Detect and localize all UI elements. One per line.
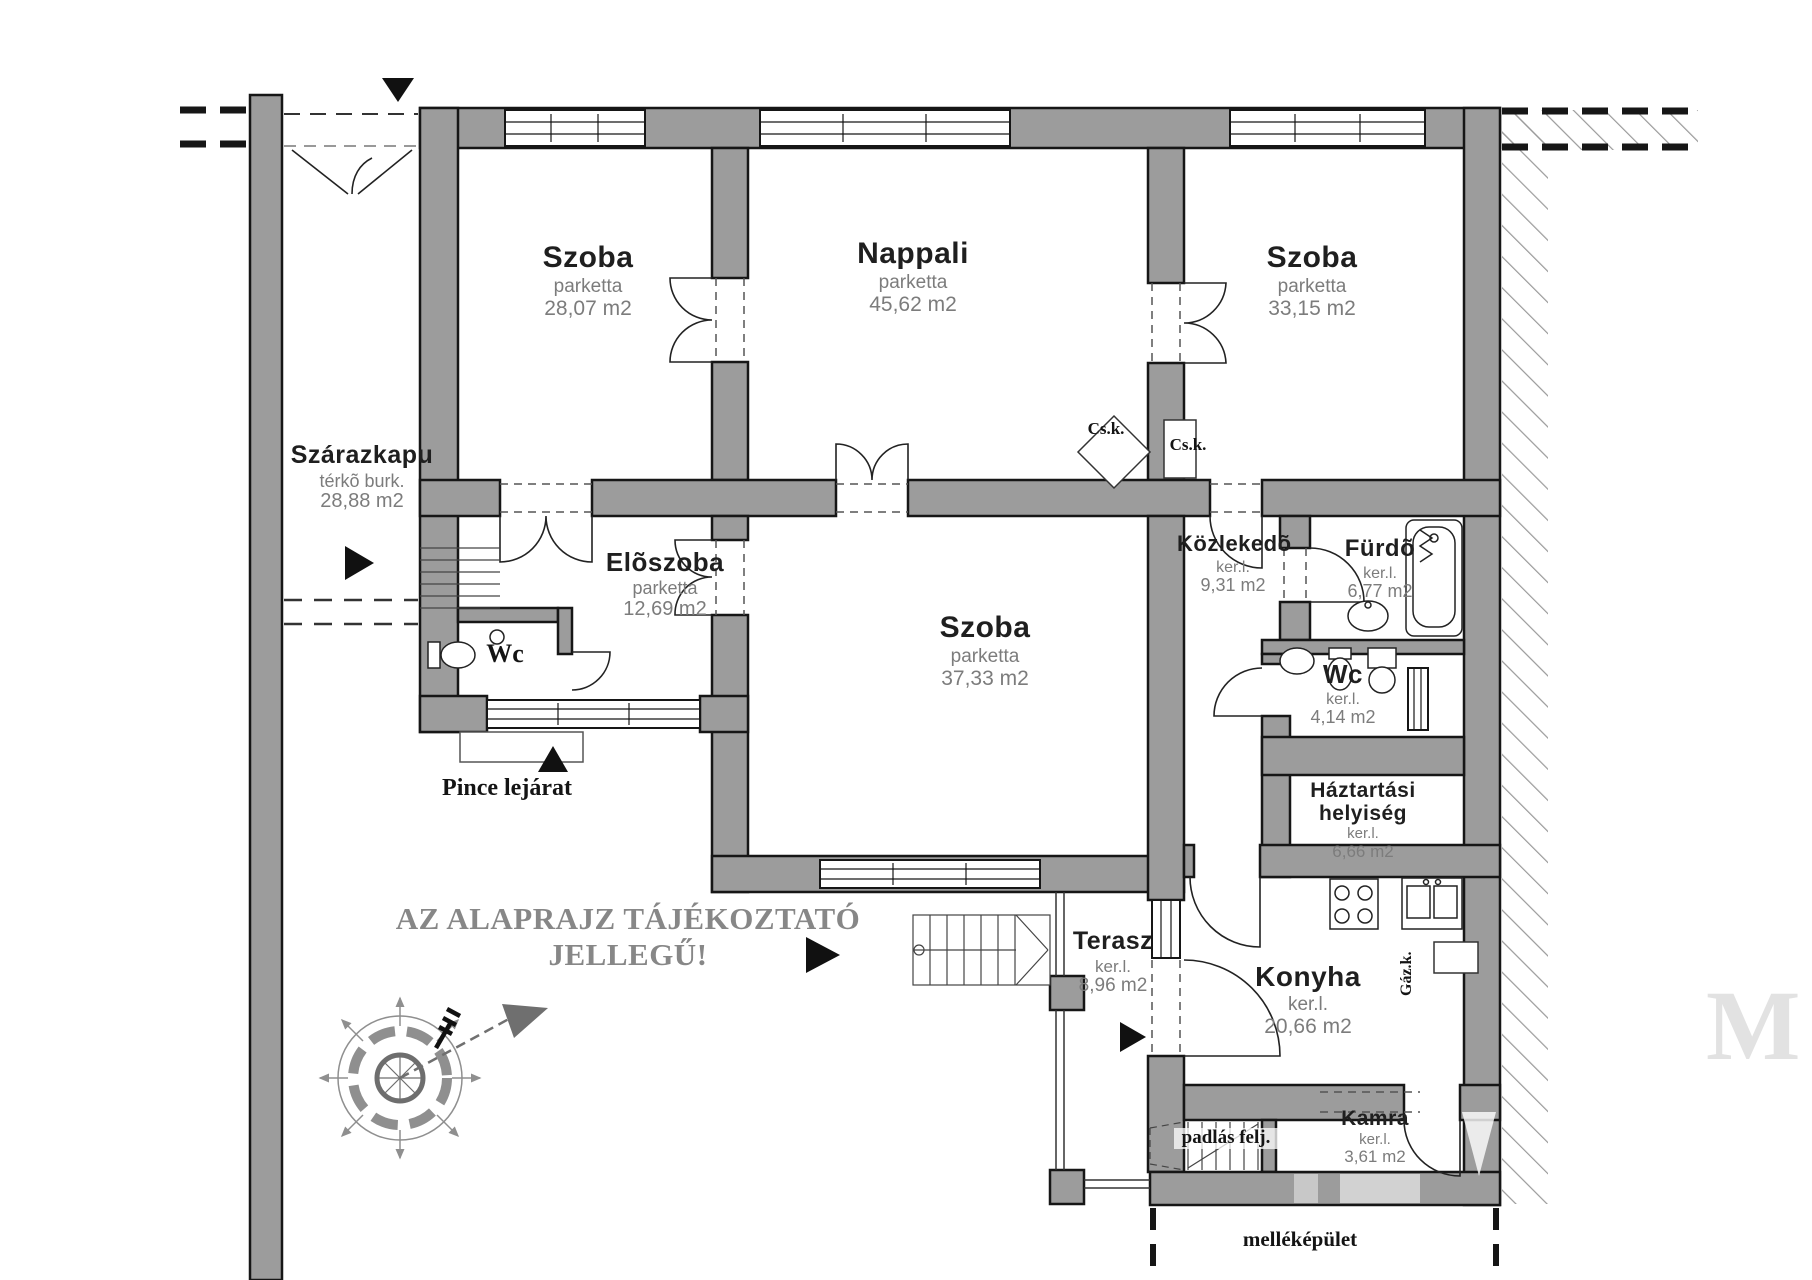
terrace-post xyxy=(1050,976,1084,1010)
wc2-basin-icon xyxy=(1368,648,1396,693)
garden-stairs xyxy=(913,915,1050,985)
door xyxy=(1214,668,1262,716)
double-door xyxy=(675,540,712,615)
gas-boiler-label: Gáz.k. xyxy=(1398,922,1416,996)
compass-rose-icon xyxy=(320,998,548,1158)
floorplan-drawing xyxy=(0,0,1812,1280)
floorplan-page: Szoba parketta 28,07 m2 Nappali parketta… xyxy=(0,0,1812,1280)
double-door xyxy=(836,444,908,480)
window xyxy=(760,110,1010,146)
double-door xyxy=(1184,283,1226,363)
tile-stove-icon xyxy=(1078,416,1150,488)
double-door xyxy=(670,278,712,362)
wc2-sink-icon xyxy=(1280,648,1314,674)
bathtub-icon xyxy=(1406,520,1462,636)
door xyxy=(1210,516,1262,568)
stove-icon xyxy=(1330,879,1378,929)
window xyxy=(1152,900,1180,958)
neighbour-building-hatch xyxy=(1502,110,1698,1204)
disclaimer-text: AZ ALAPRAJZ TÁJÉKOZTATÓ JELLEGŰ! xyxy=(358,901,898,973)
window xyxy=(1408,668,1428,730)
wall-left-boundary xyxy=(250,95,282,1280)
door xyxy=(1190,877,1260,947)
double-door xyxy=(500,516,592,562)
tile-stove-icon xyxy=(1164,420,1196,478)
bathroom-sink-icon xyxy=(1348,601,1388,631)
door xyxy=(572,652,610,690)
door-opening-dashes xyxy=(500,278,1420,1112)
wall-left-exterior xyxy=(420,108,458,732)
wc2-toilet-icon xyxy=(1328,648,1352,690)
window xyxy=(505,110,645,146)
wall-right-exterior xyxy=(1464,108,1500,1205)
door xyxy=(1310,548,1364,602)
door xyxy=(1404,1120,1460,1176)
window xyxy=(487,700,700,728)
triangle-marker-entrance xyxy=(382,78,414,102)
triangle-marker-gateway xyxy=(345,546,374,580)
cellar-bulkhead xyxy=(460,732,583,762)
walls xyxy=(250,95,1500,1280)
watermark-letter: M xyxy=(1706,968,1800,1083)
window xyxy=(1230,110,1425,146)
wall-bottom-outbuilding xyxy=(1150,1172,1500,1205)
door xyxy=(1184,960,1280,1056)
gas-boiler-icon xyxy=(1434,942,1478,973)
terrace-post xyxy=(1050,1170,1084,1204)
window xyxy=(820,860,1040,888)
triangle-marker-outbuilding xyxy=(1120,1022,1146,1052)
entrance-gate-door xyxy=(292,150,412,194)
